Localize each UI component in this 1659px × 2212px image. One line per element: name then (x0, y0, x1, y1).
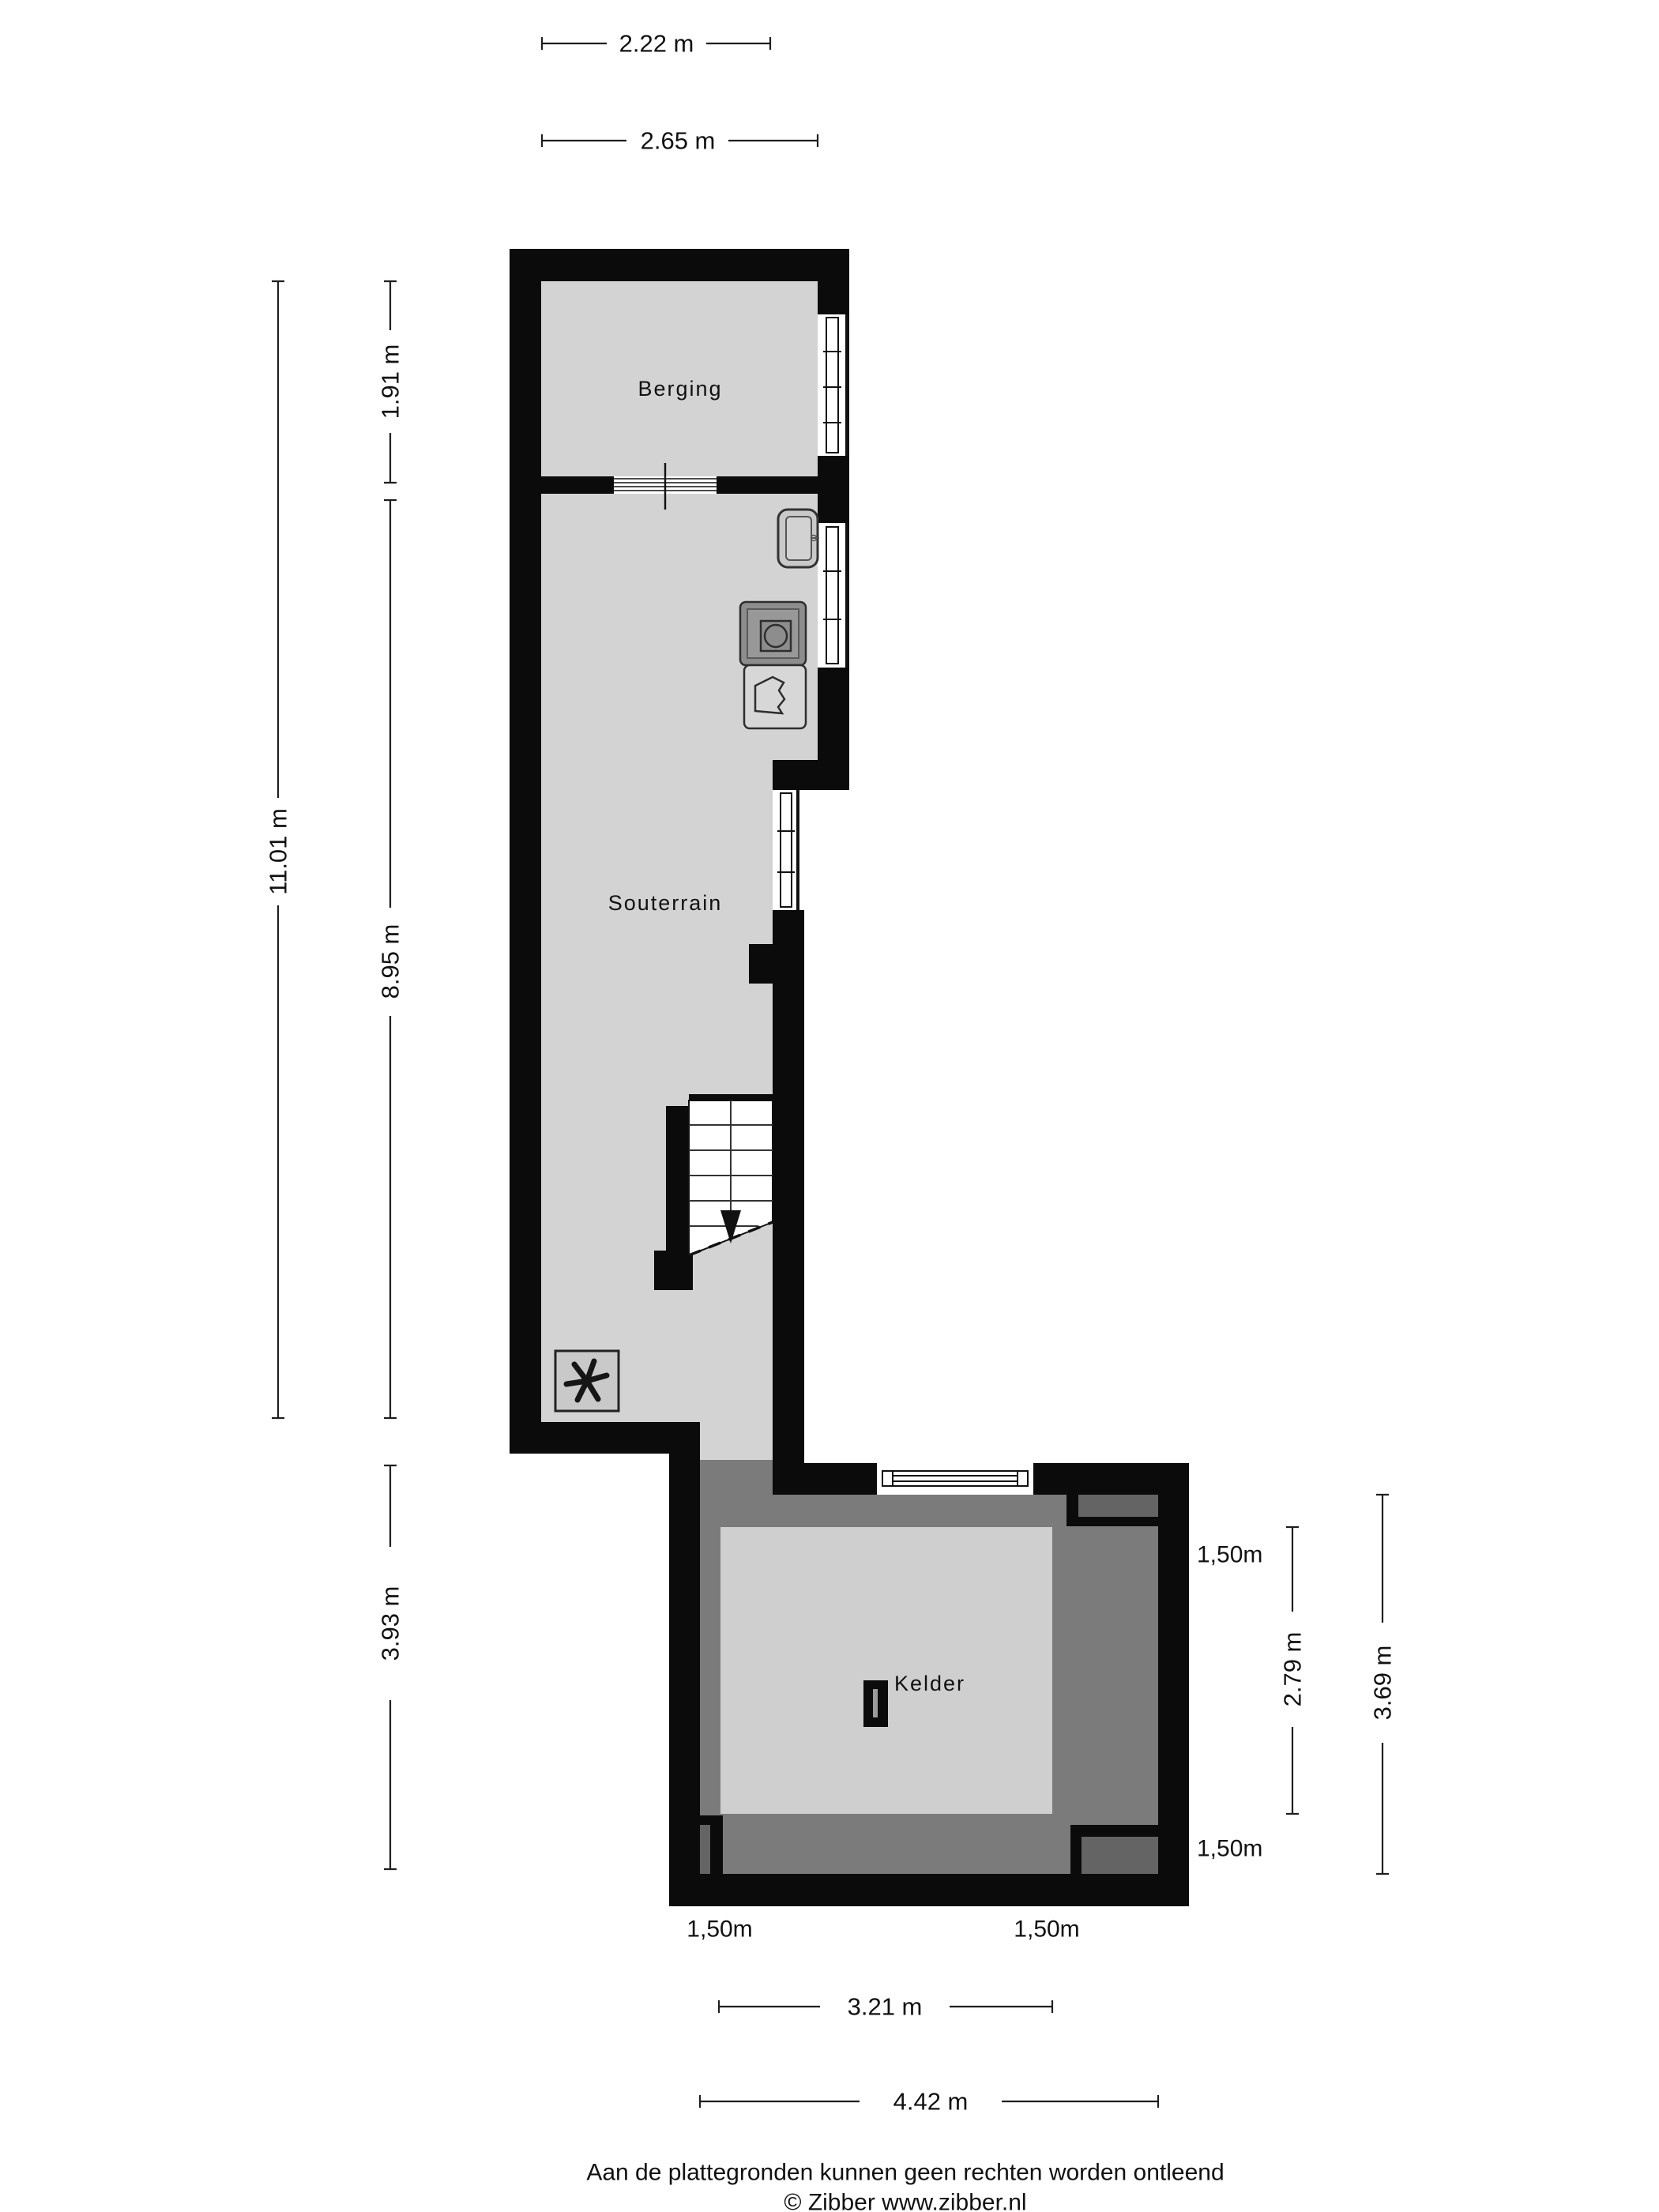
wall-kelder-bottom (669, 1874, 1189, 1906)
dim-label-2-22: 2.22 m (619, 30, 694, 58)
wall-corridor-right (773, 910, 804, 1463)
kelder-room-label: Kelder (894, 1672, 965, 1695)
berging-window (818, 314, 849, 456)
kelder-column-line (873, 1689, 878, 1717)
stairs-top-edge (689, 1094, 773, 1100)
kelder-raised-floor-zone (720, 1527, 1052, 1814)
sink-icon (778, 510, 819, 567)
washing-machine-icon (740, 602, 806, 665)
wall-left (510, 249, 541, 1454)
niche-bottom-right-inset (1082, 1837, 1158, 1874)
stairs-left-wall-foot (654, 1251, 693, 1290)
dim-label-8-95: 8.95 m (377, 924, 404, 999)
dim-label-1-91: 1.91 m (377, 344, 404, 419)
floor-plan: Berging Souterrain Kelder 2.22 m 2.65 m … (0, 0, 1659, 2212)
souterrain-room-label: Souterrain (608, 891, 723, 915)
dim-label-11-01: 11.01 m (265, 808, 292, 895)
dim-label-3-93: 3.93 m (377, 1586, 404, 1661)
dim-label-3-21: 3.21 m (848, 1993, 923, 2021)
dim-label-2-79: 2.79 m (1279, 1632, 1307, 1707)
wall-step (773, 760, 849, 790)
stairs-left-wall (666, 1106, 689, 1251)
fan-icon (555, 1351, 619, 1411)
laundry-basket-icon (744, 665, 806, 728)
wall-berging-right-upper (818, 249, 849, 314)
height-marker-right-top: 1,50m (1197, 1542, 1262, 1568)
height-marker-right-bottom: 1,50m (1197, 1836, 1262, 1862)
footer-disclaimer: Aan de plattegronden kunnen geen rechten… (586, 2160, 1224, 2186)
niche-top-right-inset (1078, 1495, 1158, 1517)
wall-kelder-left (669, 1454, 700, 1906)
souterrain-window-upper (818, 523, 849, 668)
footer-copyright: © Zibber www.zibber.nl (784, 2190, 1026, 2212)
wall-pier (749, 944, 773, 984)
wall-souterrain-right (818, 668, 849, 760)
souterrain-window-lower (773, 790, 799, 910)
wall-kelder-top-block (773, 1463, 877, 1495)
kelder-window (877, 1463, 1033, 1495)
dim-label-3-69: 3.69 m (1369, 1646, 1397, 1721)
dim-label-2-65: 2.65 m (641, 127, 716, 155)
dim-label-4-42: 4.42 m (893, 2088, 969, 2116)
height-marker-bottom-right: 1,50m (1014, 1917, 1079, 1943)
berging-room-label: Berging (638, 377, 722, 401)
wall-souterrain-bottom (510, 1422, 700, 1454)
dim-line-left-3 (384, 1465, 397, 1869)
wall-top (510, 249, 849, 281)
wall-berging-right-lower (818, 456, 849, 523)
niche-bottom-left-inset (700, 1825, 710, 1874)
height-marker-bottom-left: 1,50m (687, 1917, 752, 1943)
